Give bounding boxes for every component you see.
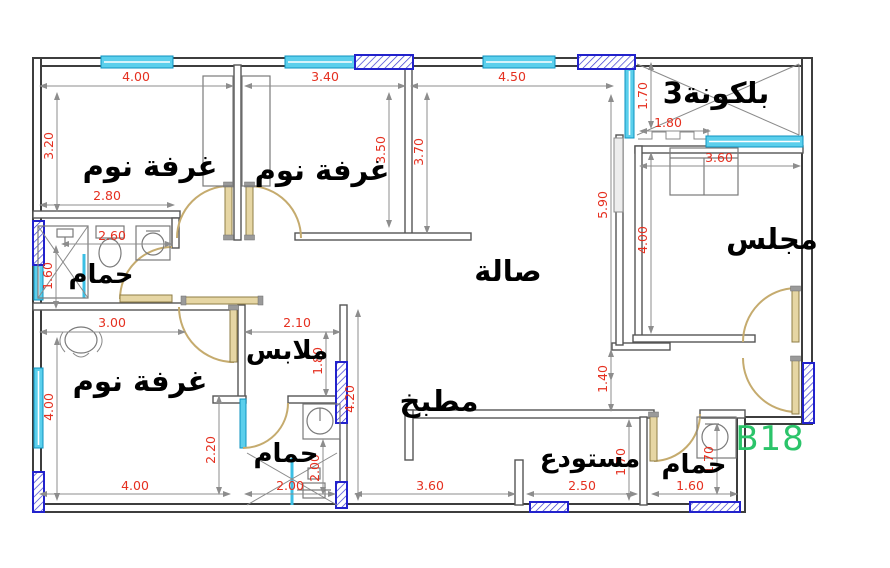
- dim-hall-length: 5.90: [595, 191, 610, 219]
- label-bathroom-bottom-right: حمام: [662, 450, 727, 480]
- wall-storage-west: [515, 460, 523, 505]
- label-balcony: بلكونة3: [663, 76, 769, 110]
- label-bathroom-bottom-middle: حمام: [254, 439, 319, 469]
- dim-bedroom3-bottom-width: 4.00: [121, 478, 149, 493]
- door-leaf-bedroom3: [230, 307, 237, 362]
- dim-entry-step: 1.80: [654, 115, 682, 130]
- floor-plan-canvas: 4.00 3.40 4.50 1.70 1.80 3.60 5.90 4.00 …: [0, 0, 890, 568]
- dim-majlis-length: 4.00: [635, 226, 650, 254]
- label-closet: ملابس: [246, 336, 328, 366]
- unit-number-label: B18: [735, 419, 805, 459]
- walls: [33, 58, 812, 512]
- dimension-lines: 4.00 3.40 4.50 1.70 1.80 3.60 5.90 4.00 …: [40, 63, 800, 500]
- dim-bath1-width: 2.60: [98, 228, 126, 243]
- dim-hall-kitchen-gap: 1.40: [595, 365, 610, 393]
- door-glass-bath2: [240, 399, 246, 448]
- door-arc-majlis: [743, 288, 796, 342]
- dim-bath2-bottom-width: 2.00: [276, 478, 304, 493]
- dim-bath3-bottom-width: 1.60: [676, 478, 704, 493]
- label-hall: صالة: [474, 254, 541, 288]
- toilet-2: [303, 404, 340, 439]
- door-leaf-bath1: [120, 295, 172, 302]
- door-leaf-hall-slider: [183, 297, 261, 304]
- label-kitchen: مطبخ: [400, 384, 479, 418]
- dim-bedroom1-width: 4.00: [122, 69, 150, 84]
- wall-hall-north: [295, 233, 471, 240]
- label-bathroom-top-left: حمام: [69, 260, 134, 290]
- door-leaf-bedroom1: [225, 184, 232, 238]
- dim-bedroom1-height: 3.20: [41, 132, 56, 160]
- dim-closet-width: 2.10: [283, 315, 311, 330]
- floor-plan-drawing: 4.00 3.40 4.50 1.70 1.80 3.60 5.90 4.00 …: [0, 0, 890, 568]
- wall-bath3-west: [640, 417, 647, 505]
- dim-bedroom2-width: 3.40: [311, 69, 339, 84]
- dim-bath2-left-height: 2.20: [203, 436, 218, 464]
- dim-storage-bottom-width: 2.50: [568, 478, 596, 493]
- wall-majlis-bottom: [633, 335, 755, 342]
- door-leaf-majlis: [792, 288, 799, 342]
- window-hatched-storage: [530, 502, 568, 512]
- window-hatched-left-bottom: [33, 472, 44, 512]
- dim-hall-top-width: 4.50: [498, 69, 526, 84]
- wall-bottom: [33, 504, 745, 512]
- dim-bath1-height: 1.60: [40, 262, 55, 290]
- label-storage: مستودع: [540, 444, 641, 474]
- dim-balcony-depth: 1.70: [635, 82, 650, 110]
- label-majlis: مجلس: [726, 222, 818, 256]
- window-hatched-top-1: [355, 55, 413, 69]
- door-leaf-bedroom2: [246, 184, 253, 238]
- dim-bath1-top-width: 2.80: [93, 188, 121, 203]
- door-arc-bedroom1: [177, 186, 229, 238]
- door-leaf-main-entry: [614, 138, 623, 212]
- washing-machine: [136, 226, 170, 260]
- door-leaf-bath3: [650, 414, 657, 461]
- dim-bedroom3-top-width: 3.00: [98, 315, 126, 330]
- fixtures: [38, 76, 738, 505]
- window-hatched-right: [803, 363, 814, 423]
- dim-bedroom3-left-height: 4.00: [41, 393, 56, 421]
- door-arc-bedroom2: [249, 186, 301, 238]
- window-hatched-kitchen-2: [336, 482, 347, 508]
- door-leaf-entry: [792, 358, 799, 414]
- window-hatched-top-2: [578, 55, 635, 69]
- window-hatched-bath3: [690, 502, 740, 512]
- dim-bedroom2-right-height: 3.70: [411, 138, 426, 166]
- room-labels: غرفة نوم غرفة نوم غرفة نوم صالة مجلس بلك…: [69, 76, 818, 480]
- door-arc-entry: [743, 358, 796, 412]
- door-arc-bedroom3: [179, 307, 234, 362]
- dim-kitchen-height: 4.20: [342, 385, 357, 413]
- dim-kitchen-bottom-width: 3.60: [416, 478, 444, 493]
- label-bedroom-top-middle: غرفة نوم: [255, 153, 390, 187]
- label-bedroom-top-left: غرفة نوم: [83, 149, 218, 183]
- wall-bedroom3-right: [238, 305, 245, 400]
- label-bedroom-bottom-left: غرفة نوم: [73, 364, 208, 398]
- wall-bath1-top: [33, 211, 180, 218]
- wall-bedroom-divider: [234, 65, 241, 240]
- dim-majlis-width: 3.60: [705, 150, 733, 165]
